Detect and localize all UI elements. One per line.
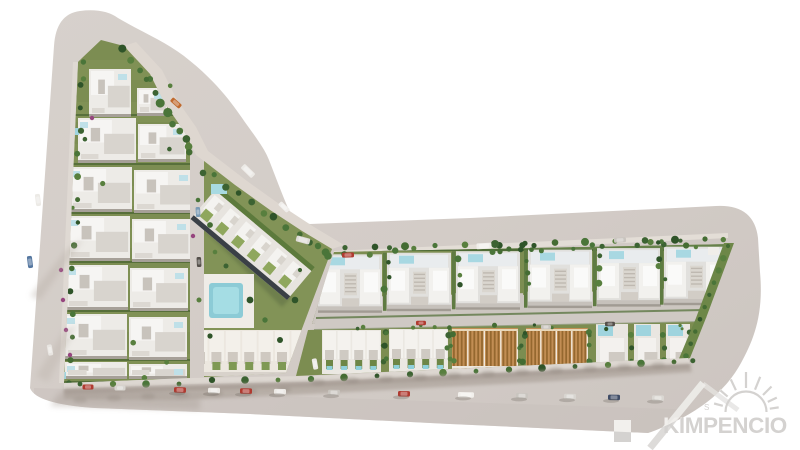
svg-text:S: S (704, 403, 709, 412)
